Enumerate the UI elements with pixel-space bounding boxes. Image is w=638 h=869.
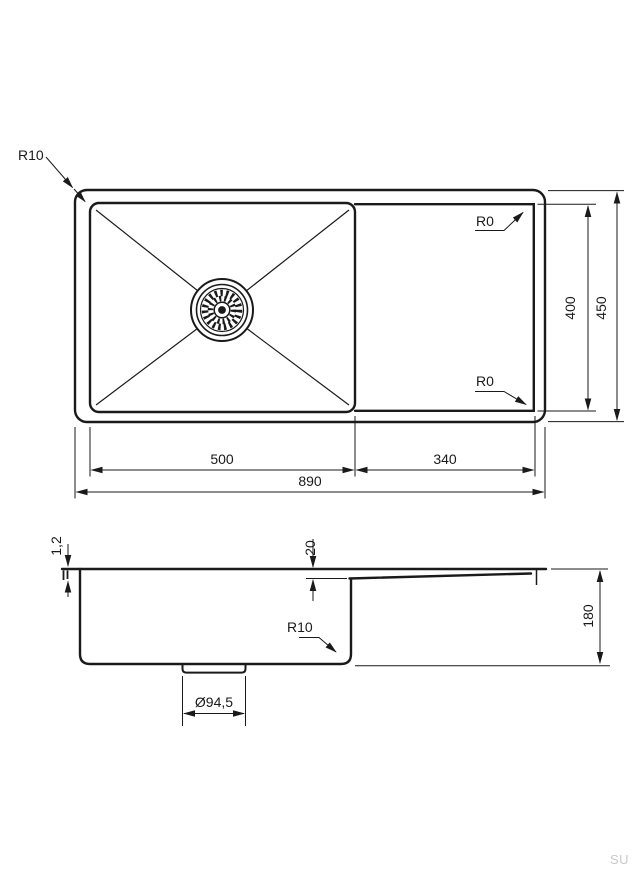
side-view: 1,2 20 R10 180 Ø94,5 xyxy=(48,536,610,726)
drain-center-dot xyxy=(218,306,226,314)
corner-radius-leader-side xyxy=(299,638,336,653)
sink-technical-drawing-page: R10 R0 R0 400 450 500 340 89 xyxy=(0,0,638,869)
corner-leader-bottom-right xyxy=(475,392,526,405)
dim-drainboard-width: 340 xyxy=(433,451,457,467)
drainboard-edge xyxy=(355,204,534,411)
bowl-profile xyxy=(80,569,351,664)
drainboard-slope-line xyxy=(350,574,532,579)
drain-icon xyxy=(191,279,253,341)
corner-label-top-right: R0 xyxy=(476,213,494,229)
corner-radius-label-top-left: R10 xyxy=(18,147,44,163)
corner-radius-leader-outer xyxy=(46,157,73,188)
dim-step-depth: 20 xyxy=(302,540,318,556)
watermark-text: SU xyxy=(610,852,629,867)
technical-drawing: R10 R0 R0 400 450 500 340 89 xyxy=(0,0,638,869)
dim-overall-width: 890 xyxy=(298,473,322,489)
dim-overall-depth: 450 xyxy=(593,296,609,320)
dim-sheet-thickness: 1,2 xyxy=(48,536,64,556)
dim-overall-height: 180 xyxy=(580,604,596,628)
top-view: R10 R0 R0 400 450 500 340 89 xyxy=(18,147,624,499)
corner-label-bottom-right: R0 xyxy=(476,373,494,389)
drain-outlet-profile xyxy=(183,665,246,673)
dim-bowl-depth: 400 xyxy=(562,296,578,320)
corner-radius-label-side: R10 xyxy=(287,619,313,635)
dim-drain-diameter: Ø94,5 xyxy=(195,694,233,710)
dim-bowl-width: 500 xyxy=(210,451,234,467)
sink-outer-edge xyxy=(75,190,545,422)
